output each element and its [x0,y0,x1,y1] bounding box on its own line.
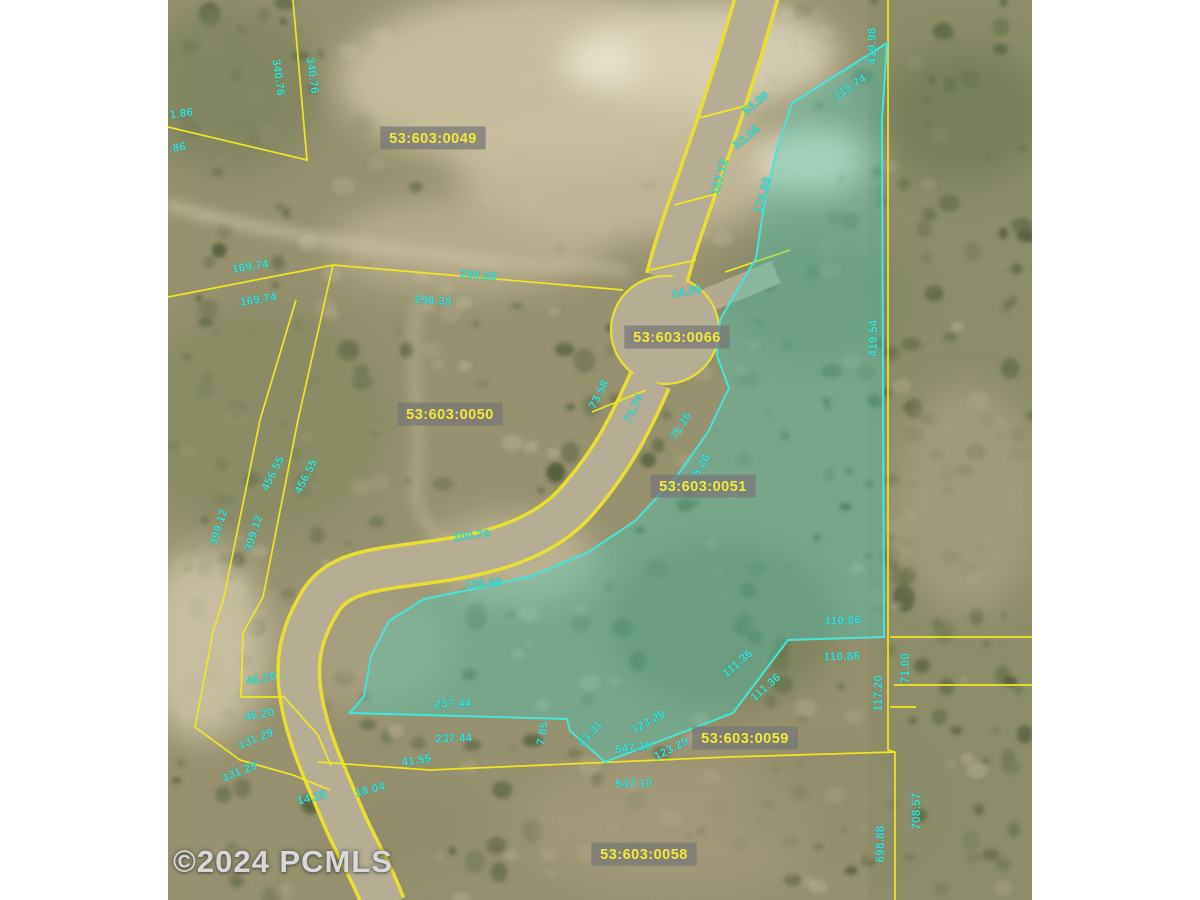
shrub-blob [511,746,516,751]
parcel-id-label: 53:603:0058 [591,843,696,866]
shrub-blob [476,379,489,387]
shrub-blob [1017,725,1032,743]
shrub-blob [1002,613,1006,618]
dimension-label: 237.44 [435,732,473,745]
shrub-blob [212,243,227,257]
shrub-blob [566,403,575,410]
shrub-blob [982,641,989,646]
dimension-label: .86 [168,141,186,155]
shrub-blob [982,848,1000,861]
shrub-blob [271,282,279,288]
shrub-blob [561,442,580,464]
terrain-patch [738,740,918,860]
shrub-blob [1001,358,1019,378]
shrub-blob [473,320,479,328]
parcel-map-canvas: 340.76340.761.86.86169.74169.74298.38298… [168,0,1032,900]
listing-photo-page: 340.76340.761.86.86169.74169.74298.38298… [0,0,1200,900]
shrub-blob [965,242,980,261]
shrub-blob [935,621,953,643]
shrub-blob [492,781,512,799]
parcel-id-label: 53:603:0059 [692,727,797,750]
shrub-blob [546,462,565,483]
dirt-blob [387,724,404,737]
shrub-blob [640,452,656,467]
shrub-blob [172,777,182,783]
shrub-blob [511,302,523,310]
dirt-blob [993,880,1012,895]
shrub-blob [914,658,930,673]
shrub-blob [491,862,508,882]
shrub-blob [1014,685,1024,695]
shrub-blob [486,837,506,854]
dirt-blob [891,601,902,610]
dirt-blob [961,677,968,683]
dirt-blob [456,296,473,309]
shrub-blob [845,866,858,875]
dirt-blob [845,708,864,723]
shrub-blob [432,477,453,490]
shrub-blob [409,182,423,193]
shrub-blob [939,678,955,696]
shrub-blob [992,728,999,733]
dirt-blob [892,378,911,393]
parcel-id-text: 53:603:0066 [633,330,721,346]
dimension-label: 698.88 [875,825,887,862]
shrub-blob [901,338,921,351]
dimension-label: 110.86 [825,614,862,627]
shrub-blob [925,286,943,302]
shrub-blob [898,178,911,191]
shrub-blob [837,683,846,690]
dirt-blob [810,880,828,894]
parcel-id-label: 53:603:0051 [650,475,755,498]
shrub-blob [922,208,937,222]
shrub-blob [234,778,251,798]
dirt-blob [274,884,293,899]
shrub-blob [961,830,979,851]
shrub-blob [464,850,485,874]
shrub-blob [396,329,404,334]
dirt-blob [458,360,472,371]
dirt-blob [332,177,355,195]
dirt-blob [946,760,956,768]
shrub-blob [909,717,917,725]
dirt-blob [546,448,559,458]
shrub-blob [277,204,282,210]
dimension-label: 708.57 [911,793,923,830]
shrub-blob [967,852,981,863]
dimension-label: 117.20 [873,675,885,711]
shrub-blob [904,853,916,862]
shrub-blob [191,545,197,549]
dirt-blob [546,869,556,877]
shrub-blob [177,759,185,767]
dirt-blob [999,263,1005,268]
shrub-blob [932,709,947,725]
shrub-blob [938,194,960,212]
shrub-blob [1011,264,1022,274]
parcel-id-label: 53:603:0066 [624,326,729,349]
terrain-patch [562,38,638,86]
parcel-id-label: 53:603:0050 [397,403,502,426]
dirt-blob [548,307,559,316]
shrub-blob [359,719,376,730]
dirt-blob [502,434,522,450]
dirt-blob [368,157,385,171]
shrub-blob [996,858,1010,872]
parcel-id-text: 53:603:0058 [600,847,688,863]
shrub-blob [943,333,957,342]
parcel-id-text: 53:603:0049 [389,131,477,147]
dirt-blob [712,230,732,246]
parcel-id-label: 53:603:0049 [380,127,485,150]
shrub-blob [574,348,595,372]
parcel-id-text: 53:603:0051 [659,479,747,495]
shrub-blob [922,252,931,264]
shrub-blob [411,737,426,750]
dirt-blob [967,762,988,779]
shrub-blob [271,255,285,271]
shrub-blob [317,49,325,59]
dirt-blob [522,441,538,453]
shrub-blob [784,874,802,886]
shrub-blob [282,208,291,218]
shrub-blob [884,388,890,396]
shrub-blob [1008,823,1020,838]
dirt-blob [793,698,816,717]
dimension-label: 237.44 [434,697,472,710]
shrub-blob [538,488,544,494]
shrub-blob [917,220,932,238]
dimension-label: 419.54 [868,319,880,356]
shrub-blob [567,749,582,758]
dirt-blob [504,849,519,861]
dimension-label: 110.86 [824,650,861,663]
dirt-blob [884,160,898,171]
shrub-blob [1008,295,1018,306]
watermark: ©2024 PCMLS [173,844,393,880]
dirt-blob [951,321,964,331]
shrub-blob [943,26,954,40]
shrub-blob [993,18,1010,36]
dimension-label: 547.10 [615,777,652,790]
shrub-blob [891,572,911,586]
aerial-parcel-map: 340.76340.761.86.86169.74169.74298.38298… [168,0,1032,900]
shrub-blob [405,478,411,483]
shrub-blob [369,516,385,527]
dimension-label: 419.98 [867,27,879,64]
shrub-blob [203,256,215,268]
dimension-label: 71.00 [900,653,912,683]
shrub-blob [1002,749,1016,766]
dirt-blob [432,359,444,369]
shrub-blob [281,589,296,600]
shrub-blob [951,726,963,734]
shrub-blob [652,438,664,452]
shrub-blob [555,343,575,356]
shrub-blob [998,228,1008,239]
shrub-blob [215,786,231,803]
shrub-blob [326,704,330,707]
shrub-blob [661,410,671,420]
parcel-id-text: 53:603:0059 [701,731,789,747]
dirt-blob [960,753,974,764]
dirt-blob [461,759,479,774]
shrub-blob [973,804,984,815]
shrub-blob [345,541,352,546]
shrub-blob [274,582,279,586]
shrub-blob [934,883,950,897]
shrub-blob [309,526,325,544]
parcel-id-text: 53:603:0050 [406,407,494,423]
shrub-blob [195,295,202,303]
dirt-blob [420,342,441,359]
shrub-blob [891,564,901,573]
